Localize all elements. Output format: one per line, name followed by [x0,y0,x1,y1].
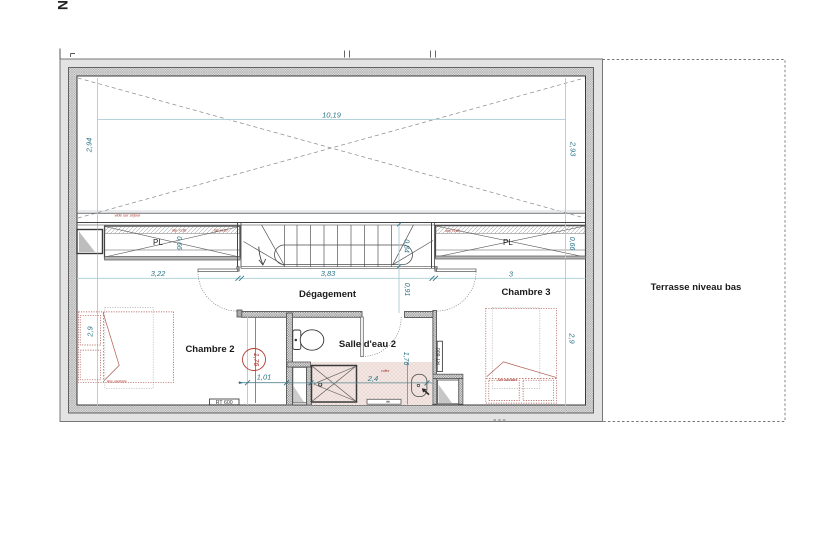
svg-text:Dégagement: Dégagement [299,289,357,300]
svg-text:dép +1,80: dép +1,80 [446,229,460,233]
svg-text:Chambre 3: Chambre 3 [501,287,550,298]
svg-text:2,9: 2,9 [568,332,577,344]
svg-text:Salle d'eau 2: Salle d'eau 2 [339,339,396,350]
svg-text:PL: PL [503,238,513,247]
svg-text:2,93: 2,93 [569,141,578,157]
svg-text:Terrasse niveau bas: Terrasse niveau bas [651,282,742,293]
svg-text:N: N [55,0,71,10]
svg-text:tab +1,20: tab +1,20 [214,229,228,233]
svg-text:Chambre 2: Chambre 2 [185,344,234,355]
svg-text:dép +1,80: dép +1,80 [172,229,186,233]
svg-text:10,19: 10,19 [322,111,342,120]
svg-text:1,01: 1,01 [257,373,272,382]
svg-text:1,76: 1,76 [402,352,409,366]
svg-text:vide sur séjour: vide sur séjour [115,213,142,218]
svg-text:RT 600: RT 600 [436,348,442,365]
svg-text:Aire sanitaire: Aire sanitaire [107,380,127,384]
svg-text:3,83: 3,83 [321,269,336,278]
svg-text:PL: PL [153,238,163,247]
svg-text:0,91: 0,91 [403,283,410,297]
svg-text:3,22: 3,22 [151,269,166,278]
svg-text:2,94: 2,94 [85,138,94,154]
svg-text:RT 600: RT 600 [216,400,233,406]
svg-text:2,4: 2,4 [367,374,378,383]
svg-text:0,84: 0,84 [403,239,410,253]
svg-text:Aire sanitaire: Aire sanitaire [498,378,518,382]
svg-text:0,66: 0,66 [175,236,182,250]
svg-text:1,76: 1,76 [252,353,259,367]
svg-text:coffre: coffre [381,369,390,373]
svg-text:0,66: 0,66 [568,237,575,251]
svg-text:2,9: 2,9 [86,325,95,337]
